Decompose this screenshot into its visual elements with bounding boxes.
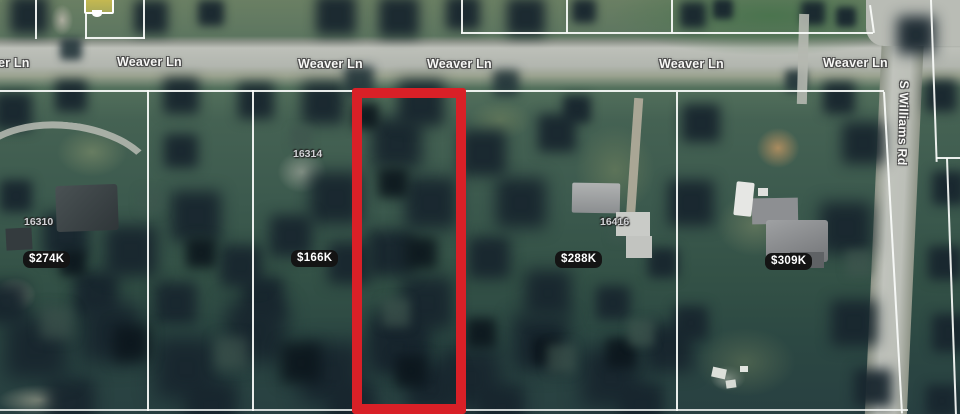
parcel-boundary-line	[143, 0, 145, 39]
trailer-309k	[733, 181, 754, 217]
highlighted-parcel-outline	[352, 88, 466, 414]
price-badge[interactable]: $288K	[555, 251, 602, 268]
price-badge[interactable]: $309K	[765, 253, 812, 270]
street-label-weaver-5: Weaver Ln	[823, 56, 888, 70]
shed-16310	[5, 227, 32, 250]
parcel-boundary-line	[671, 0, 673, 33]
price-badge[interactable]: $166K	[291, 250, 338, 267]
house-16416-pad2	[626, 236, 652, 258]
outbuilding-white	[758, 188, 768, 196]
road-intersection	[866, 0, 960, 46]
listing-marker-tail	[92, 10, 102, 17]
parcel-boundary-line	[85, 37, 145, 39]
street-label-s-williams-rd: S Williams Rd	[895, 73, 912, 173]
parcel-boundary-line	[566, 0, 568, 33]
house-16310	[55, 184, 119, 232]
debris-2	[725, 379, 736, 388]
house-16416-roof	[572, 183, 621, 214]
tree-canopy-highlights	[0, 0, 2, 2]
price-badge[interactable]: $274K	[23, 251, 70, 268]
parcel-number-label: 16314	[293, 148, 322, 160]
street-label-weaver-4: Weaver Ln	[659, 57, 724, 71]
map-canvas[interactable]: er Ln Weaver Ln Weaver Ln Weaver Ln Weav…	[0, 0, 960, 414]
debris-3	[740, 366, 748, 372]
street-label-weaver-3: Weaver Ln	[427, 57, 492, 71]
parcel-boundary-line	[147, 90, 149, 411]
street-label-weaver-2: Weaver Ln	[298, 57, 363, 71]
street-label-weaver-1: Weaver Ln	[117, 55, 182, 69]
parcel-boundary-line	[461, 32, 873, 34]
parcel-number-label: 16310	[24, 216, 53, 228]
parcel-number-label: 16416	[600, 216, 629, 228]
parcel-boundary-line	[35, 0, 37, 39]
parcel-boundary-line	[252, 90, 254, 411]
parcel-boundary-line	[461, 0, 463, 33]
street-label-weaver-0: er Ln	[0, 56, 30, 70]
parcel-boundary-line	[676, 92, 678, 411]
